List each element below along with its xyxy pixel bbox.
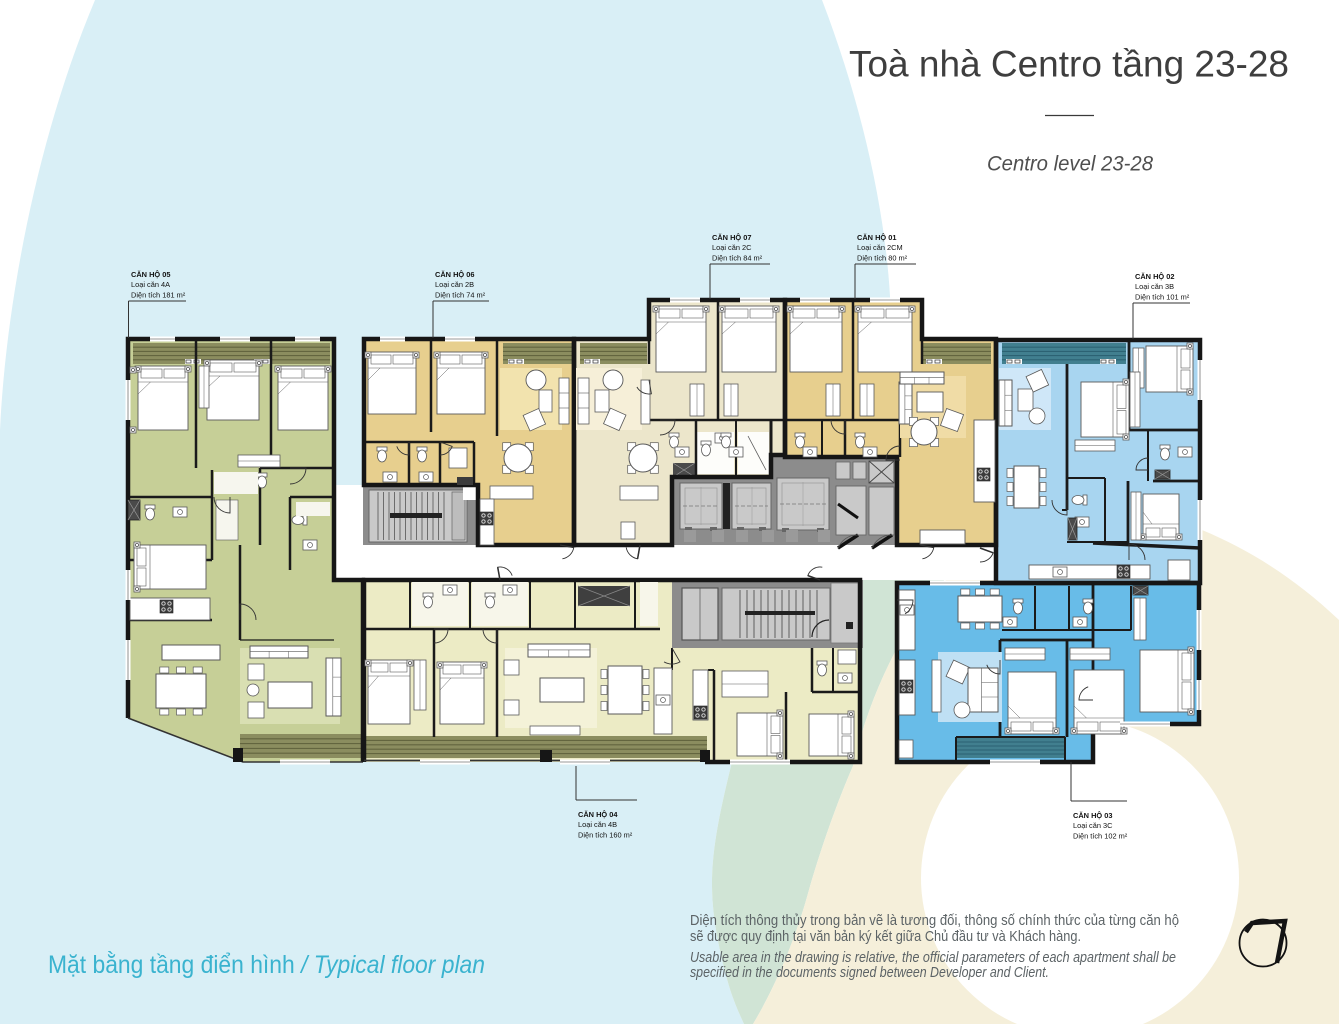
svg-text:Loại căn 2B: Loại căn 2B (435, 280, 474, 289)
svg-text:CĂN HỘ 02: CĂN HỘ 02 (1135, 272, 1174, 281)
svg-text:Loại căn 3B: Loại căn 3B (1135, 282, 1174, 291)
svg-text:Diện tích 80 m²: Diện tích 80 m² (857, 253, 908, 262)
svg-text:Diện tích 74 m²: Diện tích 74 m² (435, 290, 486, 299)
svg-text:CĂN HỘ 04: CĂN HỘ 04 (578, 810, 618, 819)
svg-text:specified in the documents sig: specified in the documents signed betwee… (690, 964, 1049, 981)
svg-text:Diện tích thông thủy trong bản: Diện tích thông thủy trong bản vẽ là tươ… (690, 912, 1179, 929)
svg-text:Diện tích 101 m²: Diện tích 101 m² (1135, 292, 1190, 301)
svg-text:CĂN HỘ 06: CĂN HỘ 06 (435, 270, 474, 279)
svg-text:Diện tích 181 m²: Diện tích 181 m² (131, 290, 186, 299)
svg-text:Diện tích 84 m²: Diện tích 84 m² (712, 253, 763, 262)
svg-text:CĂN HỘ 05: CĂN HỘ 05 (131, 270, 170, 279)
svg-text:sẽ được quy định tại văn bản k: sẽ được quy định tại văn bản ký kết giữa… (690, 928, 1081, 945)
svg-text:CĂN HỘ 03: CĂN HỘ 03 (1073, 811, 1112, 820)
svg-text:Centro level 23-28: Centro level 23-28 (987, 152, 1153, 176)
svg-text:CĂN HỘ 07: CĂN HỘ 07 (712, 233, 751, 242)
svg-text:Diện tích 102 m²: Diện tích 102 m² (1073, 831, 1128, 840)
svg-text:Loại căn 2CM: Loại căn 2CM (857, 243, 903, 252)
svg-text:Diện tích 160 m²: Diện tích 160 m² (578, 830, 633, 839)
svg-text:Loại căn 4B: Loại căn 4B (578, 820, 617, 829)
svg-text:Mặt bằng tầng điển hình / Typi: Mặt bằng tầng điển hình / Typical floor … (48, 950, 485, 979)
svg-text:Loại căn 3C: Loại căn 3C (1073, 821, 1113, 830)
svg-text:Loại căn 4A: Loại căn 4A (131, 280, 170, 289)
svg-text:Loại căn 2C: Loại căn 2C (712, 243, 752, 252)
svg-text:Toà nhà Centro tầng 23-28: Toà nhà Centro tầng 23-28 (849, 43, 1289, 85)
svg-text:CĂN HỘ 01: CĂN HỘ 01 (857, 233, 896, 242)
